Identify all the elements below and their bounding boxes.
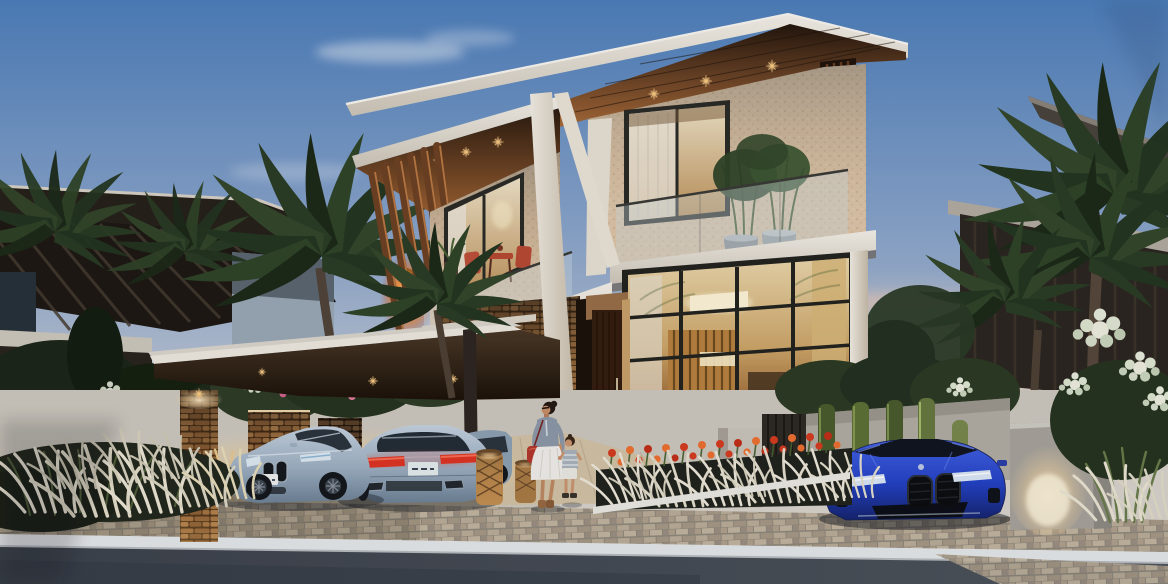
vignette [0,0,1168,584]
render-canvas [0,0,1168,584]
architectural-render [0,0,1168,584]
